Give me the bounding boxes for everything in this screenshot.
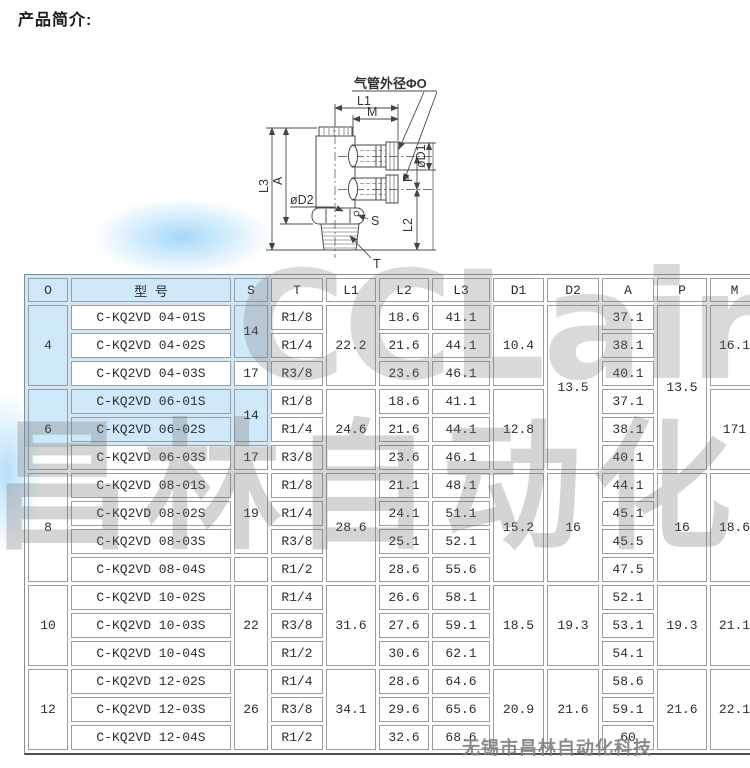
table-row: 12C-KQ2VD 12-02S26R1/434.128.664.620.921… xyxy=(28,669,750,694)
table-cell: 28.6 xyxy=(379,557,429,582)
table-cell: 13.5 xyxy=(547,305,599,470)
table-cell: 38.1 xyxy=(602,417,654,442)
table-cell: 21.1 xyxy=(710,585,750,666)
table-cell: 24.6 xyxy=(326,389,376,470)
table-cell: 47.5 xyxy=(602,557,654,582)
table-cell: 16 xyxy=(547,473,599,582)
table-cell: 17 xyxy=(234,361,268,386)
table-cell: 58.6 xyxy=(602,669,654,694)
table-row: C-KQ2VD 04-03S17R3/823.646.140.1 xyxy=(28,361,750,386)
header-cell: 型 号 xyxy=(71,278,231,302)
table-cell: 27.6 xyxy=(379,613,429,638)
table-cell: 55.6 xyxy=(432,557,490,582)
table-cell: 38.1 xyxy=(602,333,654,358)
table-cell: R3/8 xyxy=(271,697,323,722)
table-cell: 52.1 xyxy=(432,529,490,554)
table-row: C-KQ2VD 12-03SR3/829.665.659.1 xyxy=(28,697,750,722)
table-cell: 65.6 xyxy=(432,697,490,722)
header-cell: A xyxy=(602,278,654,302)
fitting-diagram: 气管外径ΦO L1 M L3 A øD2 S T øD1 P L2 xyxy=(0,0,750,280)
table-row: C-KQ2VD 04-02SR1/421.644.138.1 xyxy=(28,333,750,358)
table-cell: R3/8 xyxy=(271,529,323,554)
table-cell: 41.1 xyxy=(432,389,490,414)
table-cell: 12 xyxy=(28,669,68,750)
header-cell: D2 xyxy=(547,278,599,302)
table-cell: 23.6 xyxy=(379,361,429,386)
table-row: C-KQ2VD 06-02SR1/421.644.138.1 xyxy=(28,417,750,442)
table-cell: 16.1 xyxy=(710,305,750,386)
table-row: C-KQ2VD 08-03SR3/825.152.145.5 xyxy=(28,529,750,554)
header-cell: D1 xyxy=(493,278,544,302)
table-cell: R1/4 xyxy=(271,501,323,526)
table-cell: R1/8 xyxy=(271,389,323,414)
table-row: 6C-KQ2VD 06-01S14R1/824.618.641.112.837.… xyxy=(28,389,750,414)
table-cell: R1/8 xyxy=(271,305,323,330)
table-cell: R1/8 xyxy=(271,473,323,498)
table-cell: C-KQ2VD 06-03S xyxy=(71,445,231,470)
table-cell: 21.6 xyxy=(379,417,429,442)
table-cell: C-KQ2VD 10-03S xyxy=(71,613,231,638)
table-cell: R1/4 xyxy=(271,669,323,694)
table-cell: 21.6 xyxy=(657,669,707,750)
table-cell: 62.1 xyxy=(432,641,490,666)
table-row: C-KQ2VD 10-03SR3/827.659.153.1 xyxy=(28,613,750,638)
label-p: P xyxy=(401,174,415,182)
table-cell: 21.1 xyxy=(379,473,429,498)
table-cell: 14 xyxy=(234,305,268,358)
table-cell: C-KQ2VD 10-02S xyxy=(71,585,231,610)
fitting-drawing xyxy=(312,118,433,258)
table-cell: 54.1 xyxy=(602,641,654,666)
table-cell: 46.1 xyxy=(432,445,490,470)
table-row: C-KQ2VD 08-02SR1/424.151.145.1 xyxy=(28,501,750,526)
table-cell: R3/8 xyxy=(271,445,323,470)
table-cell: 45.5 xyxy=(602,529,654,554)
header-cell: T xyxy=(271,278,323,302)
page: { "page": { "title": "产品简介:" }, "diagram… xyxy=(0,0,750,768)
table-cell: 4 xyxy=(28,305,68,386)
label-a: A xyxy=(271,176,285,185)
label-d2: øD2 xyxy=(290,193,314,207)
table-cell: R3/8 xyxy=(271,361,323,386)
table-cell: C-KQ2VD 06-02S xyxy=(71,417,231,442)
table-row: 10C-KQ2VD 10-02S22R1/431.626.658.118.519… xyxy=(28,585,750,610)
table-header-row: O型 号STL1L2L3D1D2APM xyxy=(28,278,750,302)
table-cell: C-KQ2VD 08-04S xyxy=(71,557,231,582)
table-cell: 25.1 xyxy=(379,529,429,554)
table-cell: 37.1 xyxy=(602,305,654,330)
table-cell: 22 xyxy=(234,585,268,666)
table-row: C-KQ2VD 12-04SR1/232.668.660 xyxy=(28,725,750,750)
table-cell: 40.1 xyxy=(602,361,654,386)
table-cell: C-KQ2VD 06-01S xyxy=(71,389,231,414)
table-cell: 59.1 xyxy=(432,613,490,638)
table-cell: R1/2 xyxy=(271,557,323,582)
table-cell: 28.6 xyxy=(379,669,429,694)
table-cell: 10 xyxy=(28,585,68,666)
table-cell: 31.6 xyxy=(326,585,376,666)
table-cell: 58.1 xyxy=(432,585,490,610)
table-cell: C-KQ2VD 04-02S xyxy=(71,333,231,358)
table-cell: 19 xyxy=(234,473,268,554)
label-tube-od: 气管外径ΦO xyxy=(354,76,427,91)
header-cell: P xyxy=(657,278,707,302)
table-cell: 26 xyxy=(234,669,268,750)
table-cell: 18.6 xyxy=(379,389,429,414)
table-cell: 41.1 xyxy=(432,305,490,330)
table-cell: C-KQ2VD 04-03S xyxy=(71,361,231,386)
table-cell: 45.1 xyxy=(602,501,654,526)
table-row: C-KQ2VD 10-04SR1/230.662.154.1 xyxy=(28,641,750,666)
table-cell: 44.1 xyxy=(602,473,654,498)
table-cell: 14 xyxy=(234,389,268,442)
table-cell: 37.1 xyxy=(602,389,654,414)
table-cell: C-KQ2VD 12-04S xyxy=(71,725,231,750)
table-cell: 29.6 xyxy=(379,697,429,722)
table-cell: R3/8 xyxy=(271,613,323,638)
table-cell: 15.2 xyxy=(493,473,544,582)
table-cell: 21.6 xyxy=(379,333,429,358)
table-cell: 26.6 xyxy=(379,585,429,610)
table-cell: R1/4 xyxy=(271,417,323,442)
table-cell: 59.1 xyxy=(602,697,654,722)
table-cell: C-KQ2VD 08-01S xyxy=(71,473,231,498)
table-cell: R1/4 xyxy=(271,585,323,610)
header-cell: M xyxy=(710,278,750,302)
label-s: S xyxy=(371,214,379,228)
header-cell: O xyxy=(28,278,68,302)
table-cell: C-KQ2VD 12-03S xyxy=(71,697,231,722)
table-cell: 51.1 xyxy=(432,501,490,526)
table-cell: 48.1 xyxy=(432,473,490,498)
header-cell: S xyxy=(234,278,268,302)
table-cell: 22.2 xyxy=(326,305,376,386)
table-cell: 23.6 xyxy=(379,445,429,470)
table-cell: 19.3 xyxy=(547,585,599,666)
header-cell: L1 xyxy=(326,278,376,302)
table-cell: 18.5 xyxy=(493,585,544,666)
table-cell: 52.1 xyxy=(602,585,654,610)
label-d1: øD1 xyxy=(414,144,428,168)
table-cell: 16 xyxy=(657,473,707,582)
table-cell: 46.1 xyxy=(432,361,490,386)
table-cell: 19.3 xyxy=(657,585,707,666)
table-cell: C-KQ2VD 08-02S xyxy=(71,501,231,526)
table-cell: C-KQ2VD 12-02S xyxy=(71,669,231,694)
table-cell: 68.6 xyxy=(432,725,490,750)
page-title: 产品简介: xyxy=(18,6,92,30)
table-cell: 60 xyxy=(602,725,654,750)
label-t: T xyxy=(373,257,381,271)
table-row: C-KQ2VD 06-03S17R3/823.646.140.1 xyxy=(28,445,750,470)
table-cell: 44.1 xyxy=(432,333,490,358)
table-cell: 21.6 xyxy=(547,669,599,750)
table-cell: 20.9 xyxy=(493,669,544,750)
table-cell: R1/2 xyxy=(271,641,323,666)
table-cell: C-KQ2VD 08-03S xyxy=(71,529,231,554)
table-cell: 18.6 xyxy=(710,473,750,582)
table-row: C-KQ2VD 08-04SR1/228.655.647.5 xyxy=(28,557,750,582)
table-cell: 64.6 xyxy=(432,669,490,694)
header-cell: L2 xyxy=(379,278,429,302)
table-cell: 17 xyxy=(234,445,268,470)
table-cell: R1/2 xyxy=(271,725,323,750)
table-cell: 12.8 xyxy=(493,389,544,470)
table-cell: 6 xyxy=(28,389,68,470)
table-cell: 40.1 xyxy=(602,445,654,470)
label-l2: L2 xyxy=(401,218,415,232)
dimension-labels: 气管外径ΦO L1 M L3 A øD2 S T øD1 P L2 xyxy=(257,76,428,271)
header-cell: L3 xyxy=(432,278,490,302)
table-cell xyxy=(234,557,268,582)
table-cell: C-KQ2VD 10-04S xyxy=(71,641,231,666)
table-cell: 24.1 xyxy=(379,501,429,526)
table-cell: 10.4 xyxy=(493,305,544,386)
table-row: 8C-KQ2VD 08-01S19R1/828.621.148.115.2164… xyxy=(28,473,750,498)
table-cell: 44.1 xyxy=(432,417,490,442)
table-cell: 34.1 xyxy=(326,669,376,750)
table-cell: 30.6 xyxy=(379,641,429,666)
table-cell: 22.1 xyxy=(710,669,750,750)
label-m: M xyxy=(367,105,377,119)
spec-table: O型 号STL1L2L3D1D2APM4C-KQ2VD 04-01S14R1/8… xyxy=(24,274,750,755)
table-cell: R1/4 xyxy=(271,333,323,358)
table-cell: 171 xyxy=(710,389,750,470)
table-cell: 13.5 xyxy=(657,305,707,470)
table-cell: C-KQ2VD 04-01S xyxy=(71,305,231,330)
table-cell: 18.6 xyxy=(379,305,429,330)
label-l3: L3 xyxy=(257,179,271,193)
table-cell: 32.6 xyxy=(379,725,429,750)
table-row: 4C-KQ2VD 04-01S14R1/822.218.641.110.413.… xyxy=(28,305,750,330)
table-cell: 8 xyxy=(28,473,68,582)
table-cell: 28.6 xyxy=(326,473,376,582)
table-cell: 53.1 xyxy=(602,613,654,638)
